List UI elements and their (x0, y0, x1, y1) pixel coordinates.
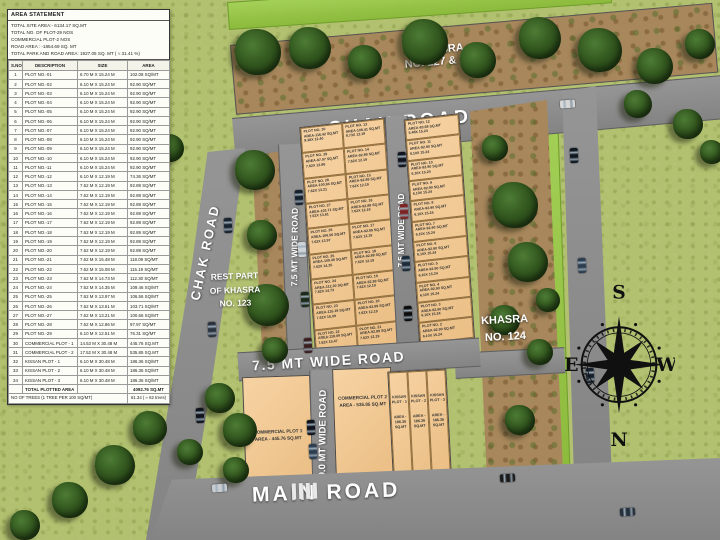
tree (685, 29, 715, 59)
col-area: AREA (128, 61, 170, 70)
table-cell: 6.10 M X 12.19 M (78, 172, 128, 181)
table-row: 30COMMERCIAL PLOT - 114.53 M X 30.48 M44… (9, 338, 170, 347)
table-cell: 92.90 SQ/MT (128, 107, 170, 116)
table-cell: 14 (9, 190, 23, 199)
table-cell: PLOT NO.-10 (23, 153, 78, 162)
table-cell: 6.10 M X 12.51 M (78, 329, 128, 338)
table-cell: PLOT NO.-12 (23, 172, 78, 181)
tree (289, 27, 331, 69)
area-statement-title: AREA STATEMENT (8, 10, 169, 21)
table-cell: 4 (9, 98, 23, 107)
table-cell: 19 (9, 237, 23, 246)
kissan-plot-line: SQ.MT (430, 422, 447, 428)
table-cell: 28 (9, 320, 23, 329)
area-table: S.NO DESCRIPTION SIZE AREA 1PLOT NO.-016… (8, 60, 170, 403)
total-value: 4092.76 SQ.MT (128, 385, 170, 394)
table-cell: KISSAN PLOT - 1 (23, 357, 78, 366)
car (620, 507, 636, 516)
tree (536, 288, 560, 312)
car (500, 473, 516, 482)
tree (482, 135, 508, 161)
table-row: 4PLOT NO.-046.10 M X 15.24 M92.90 SQ/MT (9, 98, 170, 107)
tree (578, 28, 622, 72)
table-cell: COMMERCIAL PLOT - 2 (23, 348, 78, 357)
table-row: 2PLOT NO.-026.10 M X 15.24 M92.90 SQ/MT (9, 79, 170, 88)
table-cell: 112.30 SQ/MT (128, 274, 170, 283)
tree (460, 42, 496, 78)
table-row: 19PLOT NO.-197.62 M X 12.19 M92.89 SQ/MT (9, 237, 170, 246)
table-row: 12PLOT NO.-126.10 M X 12.19 M74.36 SQ/MT (9, 172, 170, 181)
table-cell: 2 (9, 79, 23, 88)
table-cell: 7.62 M X 12.19 M (78, 190, 128, 199)
table-cell: PLOT NO.-26 (23, 301, 78, 310)
table-row: 22PLOT NO.-227.62 M X 15.08 M115.19 SQ/M… (9, 264, 170, 273)
table-row: 13PLOT NO.-137.62 M X 12.19 M92.89 SQ/MT (9, 181, 170, 190)
table-cell: 34 (9, 375, 23, 384)
table-cell: 186.36 SQ/MT (128, 375, 170, 384)
table-cell: PLOT NO.-08 (23, 135, 78, 144)
table-row: 8PLOT NO.-086.10 M X 15.24 M92.90 SQ/MT (9, 135, 170, 144)
tree (235, 29, 281, 75)
table-cell: 92.90 SQ/MT (128, 126, 170, 135)
tree (492, 182, 538, 228)
table-cell: PLOT NO.-13 (23, 181, 78, 190)
car (212, 483, 228, 492)
table-cell: 6.10 M X 30.48 M (78, 366, 128, 375)
table-row: 6PLOT NO.-066.10 M X 15.24 M92.90 SQ/MT (9, 116, 170, 125)
table-row: 18PLOT NO.-187.62 M X 12.19 M92.89 SQ/MT (9, 227, 170, 236)
tree (10, 510, 40, 540)
summary-line: TOTAL PARK AND ROAD AREA: 1927.05 SQ. MT… (11, 51, 166, 58)
kissan-plot-line: SQ.MT (392, 424, 409, 430)
table-row: 33KISSAN PLOT - 26.10 M X 30.48 M186.36 … (9, 366, 170, 375)
kissan-plot-line: PLOT - 1 (391, 400, 408, 406)
table-cell: 100.66 SQ/MT (128, 311, 170, 320)
table-cell: PLOT NO.-16 (23, 209, 78, 218)
table-cell: 15 (9, 200, 23, 209)
table-cell: 74.36 SQ/MT (128, 172, 170, 181)
table-cell: 535.85 SQ.MT (128, 348, 170, 357)
table-cell: 445.76 SQ.MT (128, 338, 170, 347)
zebra-crossing (292, 483, 318, 500)
table-cell: 76.31 SQ/MT (128, 329, 170, 338)
car (400, 204, 409, 219)
table-cell: PLOT NO.-11 (23, 163, 78, 172)
kissan-plot-line: SQ.MT (411, 423, 428, 429)
table-row: 5PLOT NO.-056.10 M X 15.24 M92.90 SQ/MT (9, 107, 170, 116)
road-90-label: 9.0 MT WIDE ROAD (317, 378, 329, 488)
table-cell: 11 (9, 163, 23, 172)
table-cell: 7.62 M X 13.61 M (78, 301, 128, 310)
tree (637, 48, 673, 84)
table-row: 29PLOT NO.-296.10 M X 12.51 M76.31 SQ/MT (9, 329, 170, 338)
table-cell: PLOT NO.-06 (23, 116, 78, 125)
site-plan-map: { "area_statement": { "title": "AREA STA… (0, 0, 720, 540)
table-cell: 30 (9, 338, 23, 347)
table-cell: 6.10 M X 15.24 M (78, 89, 128, 98)
tree (205, 383, 235, 413)
summary-line: COMMERCIAL PLOT-2 NOS (11, 37, 166, 44)
main-road-label: MAIN ROAD (252, 478, 401, 507)
tree (247, 220, 277, 250)
table-cell: 92.89 SQ/MT (128, 190, 170, 199)
table-cell: 6 (9, 116, 23, 125)
table-row: 20PLOT NO.-207.62 M X 12.19 M92.89 SQ/MT (9, 246, 170, 255)
table-cell: 32 (9, 357, 23, 366)
table-cell: PLOT NO.-19 (23, 237, 78, 246)
table-cell: 12 (9, 172, 23, 181)
table-cell: 103.71 SQ/MT (128, 301, 170, 310)
trees-label: NO OF TREES (1 TREE PER 100 SQ/MT) (9, 394, 128, 403)
tree (519, 17, 561, 59)
table-cell: 21 (9, 255, 23, 264)
table-cell: 186.36 SQ/MT (128, 366, 170, 375)
table-cell: 102.08 SQ/MT (128, 70, 170, 79)
middle-plot-block: PLOT NO. 30AREA-116.42 SQ.MT9.38X 12.40P… (299, 117, 401, 356)
table-cell: 6.10 M X 15.24 M (78, 98, 128, 107)
table-cell: KISSAN PLOT - 3 (23, 375, 78, 384)
car (208, 322, 217, 337)
table-cell: PLOT NO.-27 (23, 311, 78, 320)
table-cell: 97.97 SQ/MT (128, 320, 170, 329)
kissan-plot-line: PLOT - 3 (429, 398, 446, 404)
car (307, 420, 316, 435)
table-header-row: S.NO DESCRIPTION SIZE AREA (9, 61, 170, 70)
table-row: 25PLOT NO.-257.62 M X 13.97 M106.56 SQ/M… (9, 292, 170, 301)
table-cell: PLOT NO.-15 (23, 200, 78, 209)
table-cell: 106.56 SQ/MT (128, 292, 170, 301)
summary-line: TOTAL SITE AREA:- 6134.17 SQ.MT (11, 23, 166, 30)
table-cell: 92.90 SQ/MT (128, 79, 170, 88)
tree (348, 45, 382, 79)
table-cell: 6.10 M X 15.24 M (78, 79, 128, 88)
tree (52, 482, 88, 518)
table-row: 11PLOT NO.-116.10 M X 15.24 M92.90 SQ/MT (9, 163, 170, 172)
table-cell: PLOT NO.-23 (23, 274, 78, 283)
table-cell: 6.10 M X 15.24 M (78, 144, 128, 153)
table-cell (9, 385, 23, 394)
table-cell: 92.89 SQ/MT (128, 209, 170, 218)
khasra-123-label: REST PART OF KHASRA NO. 123 (202, 269, 267, 312)
table-cell: 14.53 M X 30.48 M (78, 338, 128, 347)
table-cell (78, 385, 128, 394)
table-row: 24PLOT NO.-247.62 M X 14.35 M109.46 SQ/M… (9, 283, 170, 292)
commercial-plot-2-label: COMMERCIAL PLOT 2 AREA - 535.85 SQ.MT (334, 394, 391, 410)
table-cell: 7.62 M X 12.19 M (78, 246, 128, 255)
table-cell: 20 (9, 246, 23, 255)
tree (505, 405, 535, 435)
table-cell: 13 (9, 181, 23, 190)
table-cell: 17 (9, 218, 23, 227)
tree (262, 337, 288, 363)
table-cell: 92.89 SQ/MT (128, 218, 170, 227)
table-cell: PLOT NO.-28 (23, 320, 78, 329)
table-cell: 7.62 M X 13.21 M (78, 311, 128, 320)
table-cell: 7.62 M X 15.08 M (78, 264, 128, 273)
table-cell: 7.62 M X 13.97 M (78, 292, 128, 301)
car (295, 190, 304, 205)
table-cell: 115.19 SQ/MT (128, 264, 170, 273)
table-row: 1PLOT NO.-016.70 M X 15.24 M102.08 SQ/MT (9, 70, 170, 79)
table-cell: 33 (9, 366, 23, 375)
table-row: 3PLOT NO.-036.10 M X 15.24 M92.90 SQ/MT (9, 89, 170, 98)
tree (223, 413, 257, 447)
col-size: SIZE (78, 61, 128, 70)
area-statement-summary: TOTAL SITE AREA:- 6134.17 SQ.MT TOTAL NO… (8, 21, 169, 60)
table-cell: 26 (9, 301, 23, 310)
table-cell: 9 (9, 144, 23, 153)
table-cell: 7.62 M X 12.19 M (78, 227, 128, 236)
total-row: TOTAL PLOTTED AREA 4092.76 SQ.MT (9, 385, 170, 394)
table-cell: PLOT NO.-07 (23, 126, 78, 135)
car (224, 218, 233, 233)
table-cell: 92.89 SQ/MT (128, 237, 170, 246)
table-cell: 6.10 M X 30.48 M (78, 375, 128, 384)
car (398, 152, 407, 167)
table-cell: 7.62 M X 14.35 M (78, 283, 128, 292)
table-cell: 25 (9, 292, 23, 301)
table-cell: PLOT NO.-24 (23, 283, 78, 292)
table-cell: 1 (9, 70, 23, 79)
table-row: 23PLOT NO.-237.62 M X 14.73 M112.30 SQ/M… (9, 274, 170, 283)
table-cell: 7.62 M X 12.19 M (78, 181, 128, 190)
tree (133, 411, 167, 445)
table-cell: 92.90 SQ/MT (128, 116, 170, 125)
table-cell: 118.09 SQ/MT (128, 255, 170, 264)
table-cell: 7.62 M X 12.19 M (78, 218, 128, 227)
kissan-plot-cell: KISSANPLOT - 3AREA -186.36SQ.MT (426, 370, 450, 473)
table-cell: 92.89 SQ/MT (128, 181, 170, 190)
car (560, 99, 576, 108)
table-cell: 7.62 M X 12.19 M (78, 200, 128, 209)
col-description: DESCRIPTION (23, 61, 78, 70)
table-cell: PLOT NO.-03 (23, 89, 78, 98)
table-cell: 92.89 SQ/MT (128, 200, 170, 209)
car (404, 306, 413, 321)
tree (624, 90, 652, 118)
table-row: 32KISSAN PLOT - 16.10 M X 30.48 M186.36 … (9, 357, 170, 366)
tree (673, 109, 703, 139)
table-row: 26PLOT NO.-267.62 M X 13.61 M103.71 SQ/M… (9, 301, 170, 310)
tree (508, 242, 548, 282)
car (402, 256, 411, 271)
table-cell: PLOT NO.-22 (23, 264, 78, 273)
table-cell: 109.46 SQ/MT (128, 283, 170, 292)
tree (223, 457, 249, 483)
table-cell: 10 (9, 153, 23, 162)
table-cell: PLOT NO.-21 (23, 255, 78, 264)
table-row: 15PLOT NO.-157.62 M X 12.19 M92.89 SQ/MT (9, 200, 170, 209)
car (570, 148, 579, 163)
table-row: 7PLOT NO.-076.10 M X 15.24 M92.90 SQ/MT (9, 126, 170, 135)
table-cell: 7 (9, 126, 23, 135)
total-label: TOTAL PLOTTED AREA (23, 385, 78, 394)
commercial-plot-2: COMMERCIAL PLOT 2 AREA - 535.85 SQ.MT (332, 367, 395, 481)
table-cell: 6.10 M X 15.24 M (78, 135, 128, 144)
table-cell: PLOT NO.-17 (23, 218, 78, 227)
area-table-body: 1PLOT NO.-016.70 M X 15.24 M102.08 SQ/MT… (9, 70, 170, 385)
table-cell: COMMERCIAL PLOT - 1 (23, 338, 78, 347)
table-row: 10PLOT NO.-106.10 M X 15.24 M92.90 SQ/MT (9, 153, 170, 162)
summary-line: ROAD AREA : -1854.69 SQ. MT (11, 44, 166, 51)
table-cell: PLOT NO.-09 (23, 144, 78, 153)
table-row: 14PLOT NO.-147.62 M X 12.19 M92.89 SQ/MT (9, 190, 170, 199)
car (304, 338, 313, 353)
table-row: 17PLOT NO.-177.62 M X 12.19 M92.89 SQ/MT (9, 218, 170, 227)
middle-block-grid: PLOT NO. 30AREA-116.42 SQ.MT9.38X 12.40P… (300, 119, 399, 356)
table-cell: PLOT NO.-18 (23, 227, 78, 236)
compass-north-label: N (610, 429, 627, 451)
kissan-grid: KISSANPLOT - 1AREA -186.36SQ.MTKISSANPLO… (388, 370, 450, 475)
table-cell: 22 (9, 264, 23, 273)
table-cell: 92.90 SQ/MT (128, 163, 170, 172)
table-cell: 186.36 SQ/MT (128, 357, 170, 366)
table-cell: 8 (9, 135, 23, 144)
table-cell: PLOT NO.-14 (23, 190, 78, 199)
tree (235, 150, 275, 190)
khasra-124-label: KHASRA NO. 124 (459, 310, 551, 348)
table-cell: 6.10 M X 15.24 M (78, 163, 128, 172)
table-cell: 92.90 SQ/MT (128, 98, 170, 107)
car (309, 444, 318, 459)
kissan-plot-block: KISSANPLOT - 1AREA -186.36SQ.MTKISSANPLO… (387, 369, 451, 476)
table-cell: 17.52 M X 30.48 M (78, 348, 128, 357)
table-cell: PLOT NO.-29 (23, 329, 78, 338)
table-cell: 3 (9, 89, 23, 98)
car (196, 408, 205, 423)
table-cell: 6.10 M X 15.24 M (78, 153, 128, 162)
table-cell: 6.10 M X 15.24 M (78, 126, 128, 135)
table-cell: KISSAN PLOT - 2 (23, 366, 78, 375)
compass-west-label: W (655, 354, 675, 376)
table-cell: PLOT NO.-20 (23, 246, 78, 255)
table-cell: 92.89 SQ/MT (128, 227, 170, 236)
table-cell: 24 (9, 283, 23, 292)
table-cell: 6.10 M X 15.24 M (78, 107, 128, 116)
kissan-plot-line: PLOT - 2 (410, 399, 427, 405)
tree (177, 439, 203, 465)
table-row: 28PLOT NO.-287.62 M X 12.86 M97.97 SQ/MT (9, 320, 170, 329)
table-cell: 7.62 M X 12.19 M (78, 237, 128, 246)
trees-value: 61.34 ( ≈ 62 trees) (128, 394, 170, 403)
car (298, 242, 307, 257)
table-cell: PLOT NO.-04 (23, 98, 78, 107)
table-row: 21PLOT NO.-217.62 M X 15.48 M118.09 SQ/M… (9, 255, 170, 264)
table-cell: PLOT NO.-01 (23, 70, 78, 79)
table-cell: 7.62 M X 15.48 M (78, 255, 128, 264)
compass-rose-icon: S N E W (563, 262, 675, 458)
table-cell: 16 (9, 209, 23, 218)
area-statement-panel: AREA STATEMENT TOTAL SITE AREA:- 6134.17… (7, 9, 170, 405)
table-cell: 7.62 M X 14.73 M (78, 274, 128, 283)
summary-line: TOTAL NO. OF PLOT-29 NOS (11, 30, 166, 37)
table-cell: 92.90 SQ/MT (128, 144, 170, 153)
tree (700, 140, 720, 164)
table-cell: 31 (9, 348, 23, 357)
table-row: 27PLOT NO.-277.62 M X 13.21 M100.66 SQ/M… (9, 311, 170, 320)
table-cell: 5 (9, 107, 23, 116)
table-cell: 6.10 M X 30.48 M (78, 357, 128, 366)
table-cell: 6.10 M X 15.24 M (78, 116, 128, 125)
table-cell: PLOT NO.-25 (23, 292, 78, 301)
table-cell: 18 (9, 227, 23, 236)
table-row: 31COMMERCIAL PLOT - 217.52 M X 30.48 M53… (9, 348, 170, 357)
car (301, 292, 310, 307)
table-cell: 92.90 SQ/MT (128, 89, 170, 98)
table-cell: PLOT NO.-05 (23, 107, 78, 116)
table-cell: 92.89 SQ/MT (128, 246, 170, 255)
table-cell: 92.90 SQ/MT (128, 135, 170, 144)
tree (402, 19, 448, 65)
table-row: 9PLOT NO.-096.10 M X 15.24 M92.90 SQ/MT (9, 144, 170, 153)
compass-south-label: S (612, 281, 625, 303)
table-cell: 6.70 M X 15.24 M (78, 70, 128, 79)
table-cell: 27 (9, 311, 23, 320)
table-cell: 92.90 SQ/MT (128, 153, 170, 162)
table-row: 34KISSAN PLOT - 36.10 M X 30.48 M186.36 … (9, 375, 170, 384)
table-row: 16PLOT NO.-167.62 M X 12.19 M92.89 SQ/MT (9, 209, 170, 218)
col-sno: S.NO (9, 61, 23, 70)
compass-east-label: E (564, 354, 578, 376)
table-cell: 7.62 M X 12.19 M (78, 209, 128, 218)
trees-row: NO OF TREES (1 TREE PER 100 SQ/MT) 61.34… (9, 394, 170, 403)
table-cell: 7.62 M X 12.86 M (78, 320, 128, 329)
table-cell: 23 (9, 274, 23, 283)
tree (95, 445, 135, 485)
table-cell: 29 (9, 329, 23, 338)
table-cell: PLOT NO.-02 (23, 79, 78, 88)
